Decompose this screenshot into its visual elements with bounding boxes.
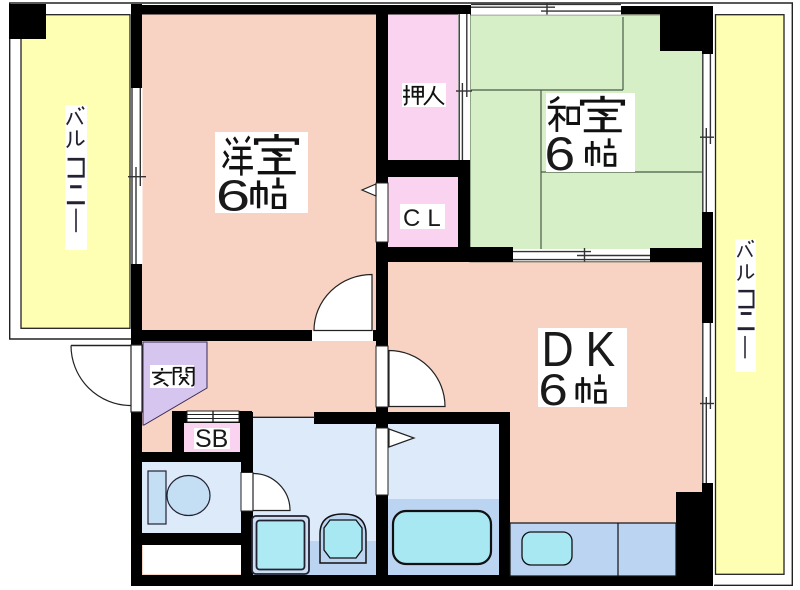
svg-text:6: 6 [538, 366, 567, 415]
svg-text:CL: CL [403, 205, 448, 232]
svg-text:6: 6 [216, 173, 250, 221]
svg-text:6: 6 [544, 127, 575, 180]
svg-text:SB: SB [195, 425, 228, 453]
